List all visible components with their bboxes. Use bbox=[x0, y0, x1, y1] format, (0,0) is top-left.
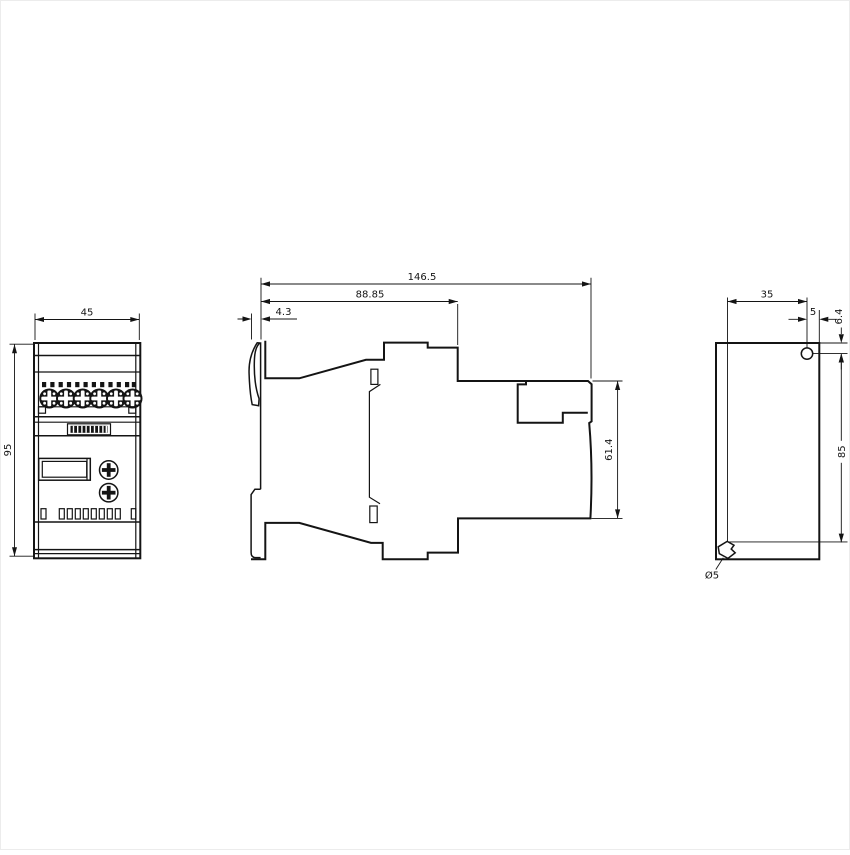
vent-slot bbox=[41, 509, 46, 519]
dim-label-hole-diameter: Ø5 bbox=[705, 570, 719, 582]
din-clip-lower bbox=[251, 489, 261, 557]
terminal-screw-icon bbox=[123, 389, 143, 409]
dim-label-upper-depth: 88.85 bbox=[356, 290, 385, 301]
dim-clip-offset: 4.3 bbox=[238, 307, 298, 340]
rear-extension-lines bbox=[728, 298, 848, 542]
din-clip-upper bbox=[249, 343, 260, 406]
dim-label-front-width: 45 bbox=[81, 308, 94, 319]
dim-label-overall-depth: 146.5 bbox=[408, 272, 437, 283]
dim-label-front-height: 95 bbox=[3, 444, 14, 457]
front-side-edges bbox=[39, 343, 136, 558]
dim-label-clip-offset: 4.3 bbox=[276, 307, 292, 318]
mounting-hole-bottom bbox=[718, 541, 735, 558]
vent-slot bbox=[115, 509, 120, 519]
dim-label-rear-height: 61.4 bbox=[604, 439, 615, 461]
dim-label-hole-edge-offset: 5 bbox=[810, 307, 816, 318]
dim-label-hole-offset-x: 35 bbox=[761, 290, 774, 301]
side-view: 146.5 88.85 4.3 61.4 bbox=[238, 272, 623, 559]
vent-slot bbox=[131, 509, 136, 519]
adjustment-screw-icon bbox=[100, 484, 118, 502]
dim-front-width: 45 bbox=[35, 308, 139, 341]
vent-slots bbox=[41, 509, 136, 519]
side-slot-lower bbox=[370, 506, 377, 523]
dim-overall-depth: 146.5 bbox=[261, 272, 591, 378]
terminal-screws bbox=[39, 389, 142, 409]
vent-slot bbox=[99, 509, 104, 519]
vent-slot bbox=[83, 509, 88, 519]
mounting-hole-top bbox=[801, 348, 812, 359]
side-profile bbox=[251, 341, 592, 559]
vent-slot bbox=[59, 509, 64, 519]
terminal-ticks bbox=[42, 382, 136, 387]
side-slot-upper bbox=[371, 369, 378, 384]
terminal-guard bbox=[39, 407, 136, 413]
connector-strip bbox=[68, 424, 111, 435]
adjustment-screw-icon bbox=[100, 461, 118, 479]
vent-slot bbox=[91, 509, 96, 519]
dim-front-height: 95 bbox=[3, 344, 34, 556]
vent-slot bbox=[107, 509, 112, 519]
dim-hole-pitch: 85 bbox=[835, 354, 848, 543]
dimension-drawing: 45 95 146.5 bbox=[0, 0, 850, 850]
rear-notch bbox=[518, 381, 588, 423]
rear-view: Ø5 35 5 6.4 85 bbox=[705, 290, 848, 582]
display-window bbox=[39, 458, 91, 480]
drawing-svg: 45 95 146.5 bbox=[1, 1, 850, 851]
dim-hole-offset-x: 35 bbox=[728, 290, 808, 304]
dim-label-hole-pitch: 85 bbox=[837, 445, 848, 458]
front-outline bbox=[34, 343, 140, 558]
rear-outline bbox=[716, 343, 819, 559]
vent-slot bbox=[67, 509, 72, 519]
front-view: 45 95 bbox=[3, 308, 143, 559]
dim-hole-edge-offset: 5 bbox=[789, 307, 838, 322]
dim-label-hole-top-offset: 6.4 bbox=[834, 309, 845, 325]
dim-rear-height: 61.4 bbox=[592, 381, 623, 518]
inner-body-edge bbox=[369, 384, 380, 503]
vent-slot bbox=[75, 509, 80, 519]
